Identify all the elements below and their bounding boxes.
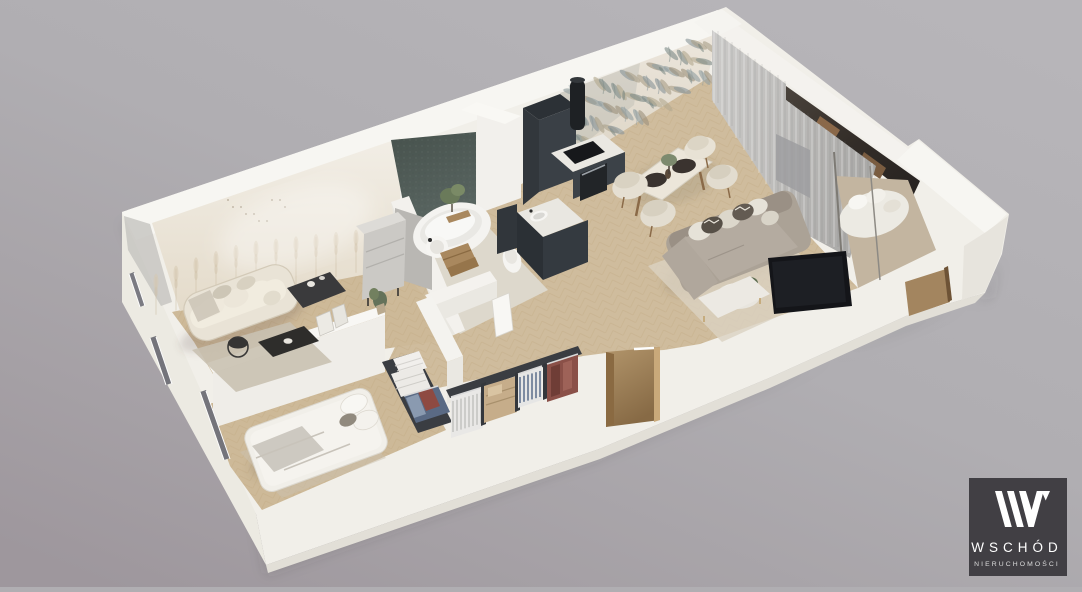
svg-text:NIERUCHOMOŚCI: NIERUCHOMOŚCI: [974, 559, 1060, 568]
svg-text:WSCHÓD: WSCHÓD: [971, 540, 1063, 555]
